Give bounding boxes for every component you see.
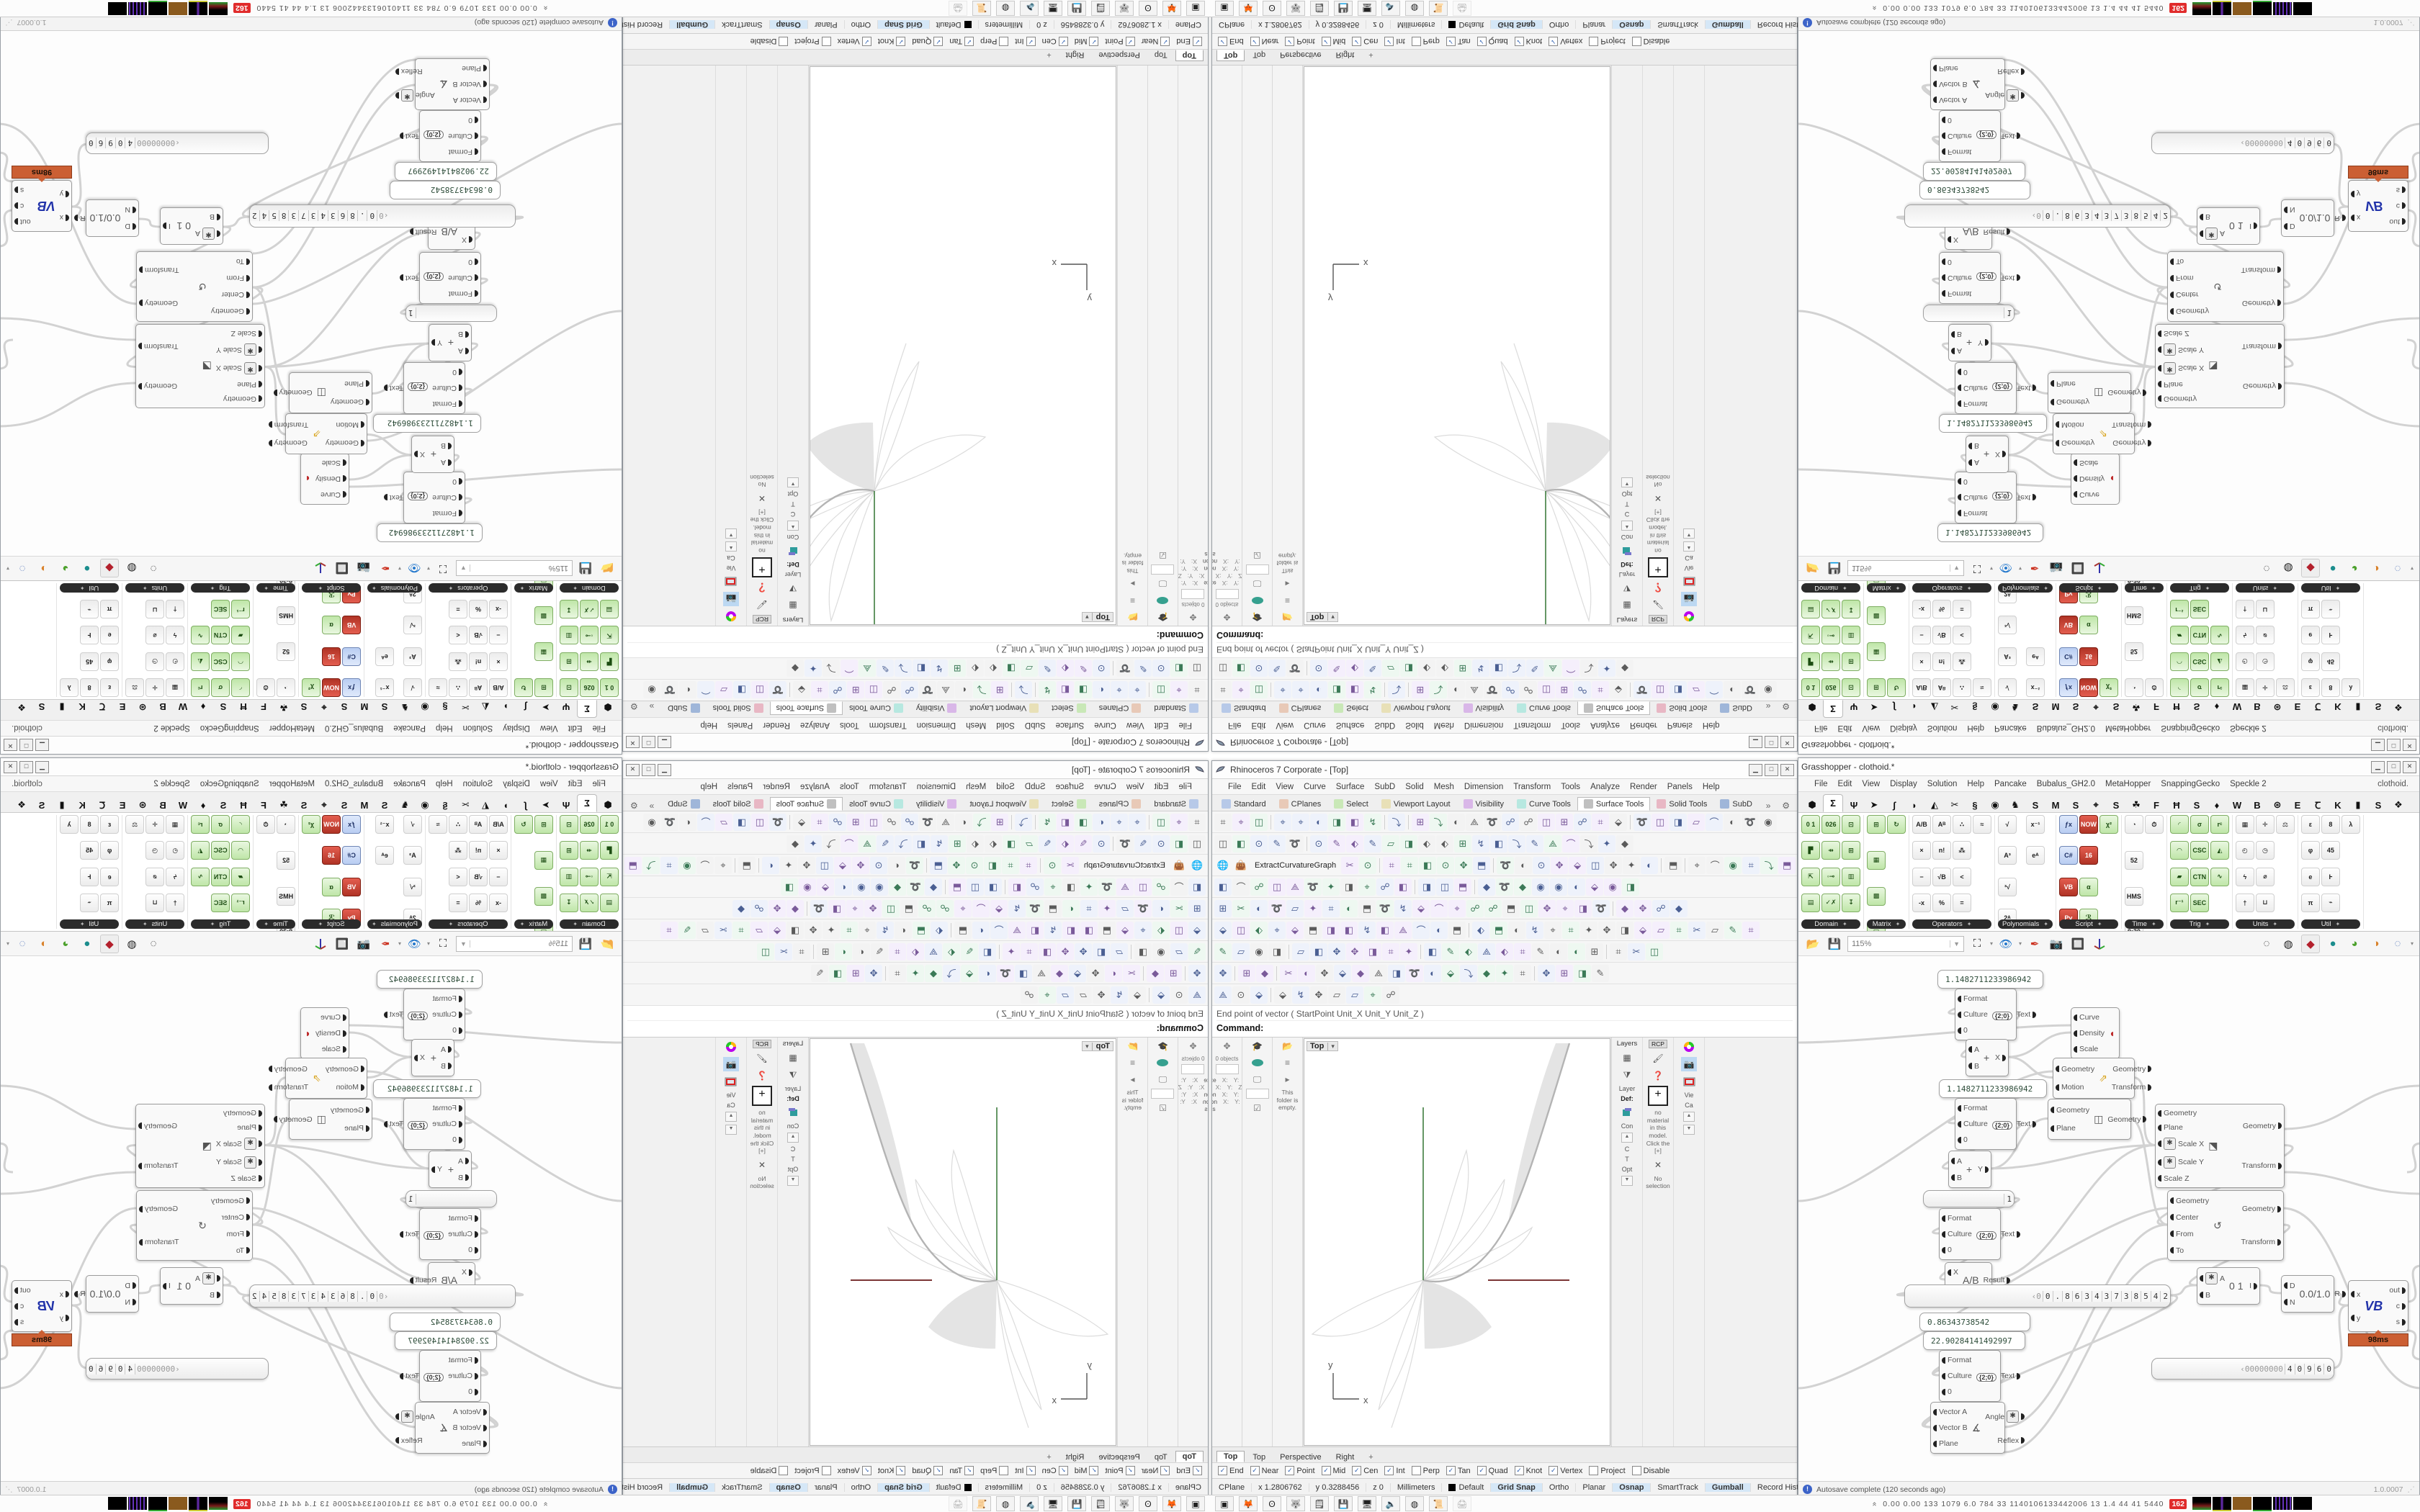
toolbar-button-icon[interactable]: ⌖ bbox=[1274, 814, 1291, 831]
gh-tab-3[interactable]: ➤ bbox=[1865, 798, 1883, 812]
gh-titlebar[interactable]: Grasshopper - clothoid.* ▁□✕ bbox=[1, 758, 622, 776]
component-icon-util-3[interactable]: π bbox=[100, 600, 119, 618]
toolbar-button-icon[interactable]: ◐ bbox=[888, 857, 905, 874]
toolbar-button-icon[interactable]: ▱ bbox=[696, 922, 714, 939]
menu-item-metahopper[interactable]: MetaHopper bbox=[2100, 723, 2156, 734]
terminal-icon[interactable]: ▣ bbox=[1186, 1496, 1205, 1511]
toolbar-button-icon[interactable]: ◉ bbox=[643, 682, 660, 699]
component-icon-util-5[interactable]: 45 bbox=[80, 652, 99, 671]
boxedit-field-rotation-y[interactable]: Y: bbox=[1229, 558, 1240, 565]
close-button[interactable]: ✕ bbox=[4, 761, 17, 773]
maximize-button[interactable]: □ bbox=[2387, 739, 2401, 752]
menu-item-help[interactable]: Help bbox=[695, 720, 722, 732]
toolbar-button-icon[interactable]: ⌗ bbox=[811, 682, 828, 699]
component-icon-units-6[interactable]: ⌀ bbox=[2256, 868, 2275, 886]
gh-component-angle[interactable]: Vector AVector BPlane∡Angle ✱Reflex bbox=[415, 58, 490, 110]
toolbar-button-icon[interactable]: ⌒ bbox=[696, 857, 714, 874]
component-icon-util-4[interactable]: 8 bbox=[80, 678, 99, 697]
toolbar-button-icon[interactable]: ◆ bbox=[732, 900, 750, 917]
component-icon-polynomials-0[interactable]: √ bbox=[403, 678, 422, 697]
gh-component-vb[interactable]: xyVBoutcs bbox=[2348, 1280, 2408, 1332]
boxedit-field-size-z[interactable]: Z: bbox=[1178, 1076, 1181, 1084]
toolbar-button-icon[interactable]: ➰ bbox=[1134, 900, 1152, 917]
gh-tab-7[interactable]: ✂ bbox=[1945, 700, 1964, 714]
toolbar-button-icon[interactable]: ⊞ bbox=[991, 682, 1008, 699]
toolbar-button-icon[interactable]: ⌖ bbox=[1232, 814, 1250, 831]
toolbar-button-icon[interactable]: ◫ bbox=[1214, 660, 1232, 678]
toolbar-tab-subd[interactable]: SubD bbox=[1713, 701, 1759, 715]
toolbar-button-icon[interactable]: ⟁ bbox=[1188, 986, 1206, 1004]
gh-tab-4[interactable]: ʃ bbox=[1885, 798, 1904, 812]
status-toggle-gumball[interactable]: Gumball bbox=[1706, 1483, 1751, 1492]
gh-component-addx[interactable]: AB+X bbox=[1966, 1039, 2009, 1076]
toolbar-button-icon[interactable]: ☍ bbox=[750, 900, 768, 917]
component-icon-units-7[interactable]: ⊔ bbox=[2256, 894, 2275, 912]
toolbar-button-icon[interactable]: ✥ bbox=[1598, 922, 1615, 939]
toolbar-button-icon[interactable]: ◧ bbox=[913, 660, 930, 678]
gh-tab-11[interactable]: S bbox=[2026, 798, 2045, 812]
toolbar-button-icon[interactable]: ◧ bbox=[1424, 943, 1441, 960]
toolbar-button-icon[interactable]: ▱ bbox=[1170, 943, 1188, 960]
gh-tab-9[interactable]: ◉ bbox=[416, 700, 434, 714]
toolbar-button-icon[interactable]: ☍ bbox=[883, 814, 900, 831]
component-icon-units-3[interactable]: † bbox=[166, 894, 184, 912]
green-sphere-icon[interactable]: ◕ bbox=[57, 935, 74, 953]
menu-item-bubalus-gh2-0[interactable]: Bubalus_GH2.0 bbox=[2032, 723, 2100, 734]
toolbar-button-icon[interactable]: ↯ bbox=[877, 922, 894, 939]
menu-item-dimension[interactable]: Dimension bbox=[912, 781, 961, 793]
open-folder-icon[interactable]: 📂 bbox=[1804, 560, 1821, 577]
menu-item-analyze[interactable]: Analyze bbox=[1585, 781, 1625, 793]
osnap-checkbox-disable[interactable] bbox=[779, 1466, 788, 1475]
component-icon-trig-0[interactable]: ◜ bbox=[231, 678, 250, 697]
boxedit-field-position-x[interactable]: X: bbox=[1216, 1091, 1228, 1098]
component-icon-domain-8[interactable]: ⊡ bbox=[560, 678, 578, 697]
component-icon-script-0[interactable]: ƒx bbox=[2059, 678, 2078, 697]
menu-item-tools[interactable]: Tools bbox=[1556, 781, 1585, 793]
component-icon-domain-5[interactable]: ⇸ bbox=[580, 652, 599, 671]
osnap-checkbox-mid[interactable]: ✓ bbox=[1322, 1466, 1331, 1475]
boxedit-field-rotation-y[interactable]: Y: bbox=[1180, 1098, 1191, 1105]
menu-item-metahopper[interactable]: MetaHopper bbox=[2100, 778, 2156, 790]
viewport-label-dropdown[interactable]: ▾ bbox=[1327, 1043, 1335, 1050]
toolbar-button-icon[interactable]: ⌖ bbox=[1688, 857, 1706, 874]
gh-tab-3[interactable]: ➤ bbox=[537, 798, 555, 812]
toolbar-button-icon[interactable]: ◫ bbox=[1188, 835, 1206, 852]
toolbar-button-icon[interactable]: ☍ bbox=[1026, 878, 1044, 896]
ribbon-pill-polynomials[interactable]: Polynomials✦ bbox=[1998, 583, 2053, 593]
component-icon-operators-12[interactable]: ≈ bbox=[429, 678, 447, 697]
ribbon-pill-domain[interactable]: Domain✦ bbox=[1801, 919, 1860, 929]
toolbar-button-icon[interactable]: ◧ bbox=[1310, 943, 1327, 960]
gh-tab-19[interactable]: S bbox=[2187, 700, 2206, 714]
component-icon-operators-9[interactable]: ⁂ bbox=[1953, 652, 1971, 671]
status-units[interactable]: Millimeters bbox=[978, 1483, 1030, 1492]
gh-tab-20[interactable]: ♦ bbox=[2208, 700, 2226, 714]
component-icon-units-0[interactable]: ▦ bbox=[2236, 815, 2254, 834]
save-icon[interactable]: 💾 bbox=[577, 935, 594, 953]
toolbar-button-icon[interactable]: ✥ bbox=[852, 857, 869, 874]
filter-funnel-icon[interactable]: ⧩ bbox=[785, 1068, 801, 1082]
menu-item-bubalus-gh2-0[interactable]: Bubalus_GH2.0 bbox=[320, 778, 388, 790]
osnap-checkbox-knot[interactable]: ✓ bbox=[896, 37, 905, 46]
component-icon-util-1[interactable]: φ bbox=[100, 841, 119, 860]
boxedit-panel[interactable]: ✥ 0 objects ▲ SizeX:Y:Z:▲ ScaleX:Y:Z:▲ P… bbox=[1178, 66, 1208, 626]
gh-tab-27[interactable]: ▮ bbox=[2349, 700, 2367, 714]
status-units[interactable]: Millimeters bbox=[1391, 1483, 1443, 1492]
toolbar-button-icon[interactable]: ✎ bbox=[1268, 660, 1286, 678]
toolbar-button-icon[interactable]: ➰ bbox=[919, 682, 936, 699]
toolbar-button-icon[interactable]: ⬒ bbox=[949, 878, 966, 896]
gh-component-fmt2[interactable]: FormatCulture0{2;0}Text bbox=[1955, 362, 2017, 414]
component-icon-matrix-0[interactable]: ⊞ bbox=[534, 678, 553, 697]
boxedit-field-position-y[interactable]: Y: bbox=[1181, 1091, 1193, 1098]
toolbar-button-icon[interactable]: ⌗ bbox=[889, 943, 906, 960]
component-icon-units-7[interactable]: ⊔ bbox=[145, 600, 164, 618]
boxedit-field-rotation-x[interactable]: X: bbox=[1191, 1098, 1203, 1105]
viewport-tab-top-2[interactable]: Top bbox=[1246, 1452, 1272, 1462]
toolbar-button-icon[interactable]: ➰ bbox=[1286, 835, 1304, 852]
component-icon-operators-1[interactable]: × bbox=[489, 652, 508, 671]
close-x-icon[interactable]: ✕ bbox=[1650, 491, 1666, 505]
boxedit-field-size-y[interactable]: Y: bbox=[1181, 580, 1193, 587]
menu-item-display[interactable]: Display bbox=[1885, 723, 1922, 734]
red-frame-icon[interactable] bbox=[1681, 575, 1697, 589]
toolbar-button-icon[interactable]: ⟁ bbox=[1544, 835, 1561, 852]
toolbar-button-icon[interactable]: ✥ bbox=[1538, 900, 1556, 917]
gh-tab-2[interactable]: Ψ bbox=[1845, 700, 1863, 714]
gh-tab-5[interactable]: ◗ bbox=[496, 798, 515, 812]
boxedit-field-scale-x[interactable]: X: bbox=[1212, 572, 1222, 580]
component-icon-operators-6[interactable]: √B bbox=[1932, 868, 1951, 886]
toolbar-button-icon[interactable]: ⌖ bbox=[1448, 900, 1466, 917]
toolbar-button-icon[interactable]: ◉ bbox=[1724, 857, 1742, 874]
component-icon-util-8[interactable]: λ bbox=[60, 678, 79, 697]
menu-item-view[interactable]: View bbox=[1121, 720, 1149, 732]
component-icon-domain-3[interactable]: ▤ bbox=[600, 894, 619, 912]
toolbar-button-icon[interactable]: ◧ bbox=[1093, 943, 1110, 960]
toolbar-button-icon[interactable]: ◧ bbox=[1170, 660, 1188, 678]
speaker-box-icon[interactable]: 🔲 bbox=[2069, 935, 2087, 953]
ribbon-pill-polynomials[interactable]: Polynomials✦ bbox=[367, 583, 422, 593]
toolbar-button-icon[interactable]: ⬙ bbox=[1250, 986, 1268, 1004]
osnap-checkbox-end[interactable]: ✓ bbox=[1193, 1466, 1202, 1475]
printer-disabled-icon[interactable]: 🖨 bbox=[1453, 1496, 1471, 1511]
toolbar-button-icon[interactable]: ✎ bbox=[1526, 835, 1543, 852]
gh-component-ds1[interactable]: ‹00.86343738542 bbox=[249, 1284, 516, 1308]
gh-component-panel3[interactable]: 0.86343738542 bbox=[1919, 181, 2030, 199]
toolbar-tab-surface-tools[interactable]: Surface Tools bbox=[1577, 797, 1650, 811]
close-button[interactable]: ✕ bbox=[2403, 761, 2416, 773]
menu-item-file[interactable]: File bbox=[1223, 781, 1247, 793]
toolbar-button-icon[interactable]: ◧ bbox=[1394, 878, 1412, 896]
component-icon-domain-7[interactable]: ✓✗ bbox=[580, 894, 599, 912]
boxedit-section-size[interactable]: ▲ Size bbox=[1212, 580, 1216, 587]
toolbar-button-icon[interactable]: ⬙ bbox=[1286, 922, 1304, 939]
toolbar-button-icon[interactable]: ◐ bbox=[679, 814, 696, 831]
menu-item-transform[interactable]: Transform bbox=[1508, 720, 1556, 732]
gh-component-addy[interactable]: AB+Y bbox=[429, 1151, 472, 1188]
toolbar-button-icon[interactable]: ◐ bbox=[1568, 878, 1585, 896]
toolbar-tab-visibility[interactable]: Visibility bbox=[910, 701, 964, 715]
menu-item-mesh[interactable]: Mesh bbox=[961, 781, 991, 793]
ribbon-pill-time[interactable]: Time✦ bbox=[256, 919, 295, 929]
component-icon-operators-2[interactable]: − bbox=[489, 868, 508, 886]
zoom-extents-icon[interactable]: ⛶ bbox=[434, 935, 452, 953]
boxedit-section-size[interactable]: ▲ Size bbox=[1204, 1076, 1208, 1084]
component-icon-units-0[interactable]: ▦ bbox=[166, 678, 184, 697]
toolbar-button-icon[interactable]: ⌖ bbox=[1044, 878, 1062, 896]
menu-item-pancake[interactable]: Pancake bbox=[1989, 723, 2032, 734]
menu-item-speckle-2[interactable]: Speckle 2 bbox=[148, 778, 195, 790]
gh-canvas[interactable]: 1.1482711233986942FormatCulture0{2;0}Tex… bbox=[1798, 956, 2419, 1481]
toolbar-button-icon[interactable]: ⬖ bbox=[1496, 943, 1513, 960]
component-icon-trig-7[interactable]: SEC bbox=[2190, 600, 2209, 618]
menu-item-panels[interactable]: Panels bbox=[722, 720, 758, 732]
scroll-down-icon[interactable]: ▼ bbox=[725, 528, 737, 539]
toolbar-button-icon[interactable]: ✎ bbox=[1075, 835, 1092, 852]
status-toggle-gumball[interactable]: Gumball bbox=[1706, 20, 1751, 29]
gh-component-addx[interactable]: AB+X bbox=[411, 436, 454, 473]
gh-tab-12[interactable]: M bbox=[2046, 700, 2065, 714]
component-icon-matrix-0[interactable]: ⊞ bbox=[1867, 678, 1886, 697]
component-icon-polynomials-0[interactable]: √ bbox=[1998, 815, 2017, 834]
toolbar-button-icon[interactable]: ⌒ bbox=[1562, 660, 1579, 678]
component-icon-operators-9[interactable]: ⁂ bbox=[449, 652, 467, 671]
blender-icon[interactable]: ʘ bbox=[1263, 1496, 1281, 1511]
component-icon-trig-2[interactable]: ▰ bbox=[2170, 868, 2189, 886]
component-icon-domain-11[interactable]: ↧ bbox=[1842, 894, 1860, 912]
component-icon-util-5[interactable]: 45 bbox=[80, 841, 99, 860]
scroll-up-icon[interactable]: ▲ bbox=[1683, 1112, 1695, 1122]
component-icon-polynomials-5[interactable]: eᴬ bbox=[375, 647, 394, 666]
component-icon-domain-2[interactable]: ⇱ bbox=[600, 626, 619, 645]
component-icon-time-4[interactable]: ⏱ bbox=[256, 815, 275, 834]
menu-item-bubalus-gh2-0[interactable]: Bubalus_GH2.0 bbox=[320, 723, 388, 734]
component-icon-util-6[interactable]: Ⱶ bbox=[2321, 868, 2340, 886]
ribbon-pill-util[interactable]: Util✦ bbox=[60, 919, 119, 929]
toolbar-button-icon[interactable]: ▱ bbox=[1652, 922, 1670, 939]
toolbar-button-icon[interactable]: ⬙ bbox=[793, 814, 810, 831]
toolbar-button-icon[interactable]: ⌗ bbox=[660, 922, 678, 939]
toolbar-button-icon[interactable]: ◫ bbox=[1436, 878, 1453, 896]
component-icon-operators-3[interactable]: -x bbox=[1912, 600, 1931, 618]
component-icon-units-8[interactable]: ⚖ bbox=[2276, 678, 2295, 697]
toolbar-button-icon[interactable]: ⤵ bbox=[823, 660, 840, 678]
component-icon-script-5[interactable]: 16 bbox=[2079, 647, 2098, 666]
toolbar-button-icon[interactable]: ⌗ bbox=[793, 943, 810, 960]
toolbar-button-icon[interactable]: ⬖ bbox=[1436, 835, 1453, 852]
extract-curvature-graph-button[interactable]: ExtractCurvatureGraph bbox=[1250, 861, 1340, 870]
toolbar-button-icon[interactable]: ↯ bbox=[1044, 922, 1062, 939]
printer-disabled-icon[interactable]: 🖨 bbox=[949, 1, 967, 16]
toolbar-button-icon[interactable]: ✦ bbox=[1322, 878, 1340, 896]
toolbar-button-icon[interactable]: ↯ bbox=[931, 835, 948, 852]
menu-item-render[interactable]: Render bbox=[758, 781, 795, 793]
menu-item-edit[interactable]: Edit bbox=[563, 778, 588, 790]
ribbon-pill-time[interactable]: Time✦ bbox=[256, 583, 295, 593]
menu-item-view[interactable]: View bbox=[535, 723, 563, 734]
component-icon-time-1[interactable]: 52 bbox=[277, 642, 295, 661]
menu-item-edit[interactable]: Edit bbox=[1149, 720, 1174, 732]
status-toggle-osnap[interactable]: Osnap bbox=[1613, 1483, 1651, 1492]
component-icon-units-6[interactable]: ⌀ bbox=[2256, 626, 2275, 645]
toolbar-button-icon[interactable]: ☍ bbox=[829, 682, 846, 699]
menu-item-display[interactable]: Display bbox=[498, 778, 535, 790]
toolbar-button-icon[interactable]: ◧ bbox=[984, 857, 1001, 874]
gh-tab-16[interactable]: ☘ bbox=[2127, 798, 2146, 812]
toolbar-overflow-chevron[interactable]: » bbox=[1762, 801, 1775, 811]
gh-component-ds2[interactable]: ‹0000000040960 bbox=[86, 132, 269, 154]
toolbar-button-icon[interactable]: ⬒ bbox=[1778, 857, 1796, 874]
component-icon-script-6[interactable]: α bbox=[322, 878, 341, 896]
toolbar-button-icon[interactable]: ⤵ bbox=[895, 835, 912, 852]
toolbar-button-icon[interactable]: ◆ bbox=[786, 900, 804, 917]
component-icon-operators-4[interactable]: Aᴮ bbox=[1932, 815, 1951, 834]
help-icon[interactable]: ❓ bbox=[1650, 1068, 1666, 1083]
component-icon-util-6[interactable]: Ⱶ bbox=[80, 626, 99, 645]
speaker-icon[interactable]: 🔈 bbox=[1381, 1496, 1400, 1511]
osnap-checkbox-int[interactable]: ✓ bbox=[1384, 1466, 1394, 1475]
floppy64-icon[interactable]: 💾 bbox=[1334, 1, 1353, 16]
component-icon-script-0[interactable]: ƒx bbox=[342, 678, 361, 697]
hamburger-icon[interactable]: ≡ bbox=[1125, 593, 1141, 608]
component-icon-domain-5[interactable]: ⇸ bbox=[1821, 652, 1840, 671]
status-toggle-ortho[interactable]: Ortho bbox=[844, 20, 878, 29]
component-icon-script-1[interactable]: C# bbox=[2059, 846, 2078, 865]
component-icon-trig-4[interactable]: σ bbox=[2190, 815, 2209, 834]
ribbon-pill-script[interactable]: Script✦ bbox=[2059, 583, 2118, 593]
expand-icon[interactable]: ▸ bbox=[1125, 1072, 1141, 1086]
gh-tab-28[interactable]: S bbox=[32, 798, 51, 812]
toolbar-button-icon[interactable]: ◆ bbox=[1256, 965, 1273, 982]
component-icon-operators-2[interactable]: − bbox=[1912, 626, 1931, 645]
toolbar-button-icon[interactable]: ✎ bbox=[811, 965, 828, 982]
toolbar-button-icon[interactable]: ☍ bbox=[1021, 986, 1038, 1004]
gh-tab-26[interactable]: K bbox=[2329, 798, 2347, 812]
gh-component-panel1[interactable]: 1.1482711233986942 bbox=[1937, 970, 2043, 989]
component-icon-operators-8[interactable]: ∴ bbox=[449, 678, 467, 697]
toolbar-button-icon[interactable]: ⊙ bbox=[1250, 835, 1268, 852]
toolbar-button-icon[interactable]: ✥ bbox=[948, 857, 965, 874]
status-toggle-grid-snap[interactable]: Grid Snap bbox=[877, 20, 929, 29]
maximize-button[interactable]: □ bbox=[2387, 761, 2401, 773]
red-gem-icon[interactable]: ◆ bbox=[2301, 559, 2320, 578]
gh-tab-5[interactable]: ◗ bbox=[1905, 700, 1924, 714]
gh-tab-28[interactable]: S bbox=[2369, 798, 2388, 812]
toolbar-button-icon[interactable]: ⌒ bbox=[1430, 900, 1448, 917]
viewport-tab-perspective[interactable]: Perspective bbox=[1273, 50, 1327, 60]
gh-tab-0[interactable]: ⬢ bbox=[599, 798, 617, 812]
menu-item-help[interactable]: Help bbox=[1962, 723, 1989, 734]
toolbar-tab-subd[interactable]: SubD bbox=[1713, 797, 1759, 811]
gh-component-vb[interactable]: xyVBoutcs bbox=[2348, 180, 2408, 232]
menu-item-display[interactable]: Display bbox=[498, 723, 535, 734]
toolbar-button-icon[interactable]: ◫ bbox=[757, 943, 774, 960]
component-icon-trig-7[interactable]: SEC bbox=[211, 600, 230, 618]
dashed-circle-icon[interactable]: ◌ bbox=[2389, 935, 2406, 953]
status-layer[interactable]: Default bbox=[1442, 1483, 1491, 1492]
gh-component-panel4[interactable]: 22.90284141492997 bbox=[1923, 1331, 2025, 1350]
firefox-icon[interactable]: 🦊 bbox=[1162, 1496, 1181, 1511]
toolbar-button-icon[interactable]: ◧ bbox=[1232, 835, 1250, 852]
gh-tab-19[interactable]: S bbox=[214, 700, 233, 714]
add-material-button[interactable]: + bbox=[752, 557, 772, 577]
component-icon-polynomials-2[interactable]: ³√ bbox=[1998, 616, 2017, 635]
toolbar-button-icon[interactable]: ✎ bbox=[678, 922, 696, 939]
toolbar-button-icon[interactable]: ◆ bbox=[786, 835, 804, 852]
gh-tab-10[interactable]: ♞ bbox=[395, 700, 414, 714]
osnap-checkbox-perp[interactable] bbox=[999, 37, 1008, 46]
toolbar-button-icon[interactable]: ⬒ bbox=[930, 857, 947, 874]
component-icon-trig-3[interactable]: r⁻¹ bbox=[231, 600, 250, 618]
gh-tab-19[interactable]: S bbox=[214, 798, 233, 812]
gh-component-fmt2[interactable]: FormatCulture0{2;0}Text bbox=[403, 1098, 465, 1150]
ribbon-pill-polynomials[interactable]: Polynomials✦ bbox=[367, 919, 422, 929]
gh-component-ds2[interactable]: ‹0000000040960 bbox=[2151, 1358, 2334, 1380]
component-icon-units-4[interactable]: ✛ bbox=[145, 815, 164, 834]
component-icon-time-2[interactable]: HMS bbox=[277, 607, 295, 626]
component-icon-operators-11[interactable]: = bbox=[449, 600, 467, 618]
menu-item-subd[interactable]: SubD bbox=[1369, 781, 1400, 793]
gh-tab-4[interactable]: ʃ bbox=[516, 700, 535, 714]
toolbar-button-icon[interactable]: ✦ bbox=[1623, 857, 1640, 874]
toolbar-button-icon[interactable]: ⌗ bbox=[1080, 900, 1098, 917]
component-icon-trig-2[interactable]: ▰ bbox=[231, 626, 250, 645]
viewport-tab-perspective[interactable]: Perspective bbox=[1092, 50, 1146, 60]
toolbar-button-icon[interactable]: ◫ bbox=[865, 682, 882, 699]
toolbar-button-icon[interactable]: ⟁ bbox=[1033, 965, 1050, 982]
toolbar-button-icon[interactable]: ⊞ bbox=[1412, 682, 1429, 699]
component-icon-operators-11[interactable]: = bbox=[1953, 600, 1971, 618]
component-icon-trig-10[interactable]: ∿ bbox=[2210, 626, 2229, 645]
gh-tab-20[interactable]: ♦ bbox=[194, 700, 212, 714]
toolbar-button-icon[interactable]: ◆ bbox=[1147, 965, 1164, 982]
toolbar-button-icon[interactable]: ⊞ bbox=[1586, 943, 1603, 960]
camera-icon[interactable]: 📷 bbox=[1681, 1057, 1697, 1071]
toolbar-button-icon[interactable]: ◫ bbox=[1152, 682, 1170, 699]
toolbar-button-icon[interactable]: ✦ bbox=[1080, 878, 1098, 896]
toolbar-button-icon[interactable]: ⤵ bbox=[943, 965, 960, 982]
viewport-tab-right[interactable]: Right bbox=[1059, 50, 1091, 60]
component-icon-util-3[interactable]: π bbox=[100, 894, 119, 912]
gh-tab-18[interactable]: Ħ bbox=[2167, 700, 2186, 714]
viewport-top[interactable]: Top▾ bbox=[1304, 66, 1610, 625]
gh-tab-25[interactable]: Ꞇ bbox=[2308, 700, 2327, 714]
component-icon-trig-5[interactable]: CSC bbox=[211, 841, 230, 860]
gh-tab-17[interactable]: F bbox=[254, 700, 273, 714]
toolbar-button-icon[interactable]: ⟁ bbox=[937, 682, 954, 699]
component-icon-operators-1[interactable]: × bbox=[1912, 652, 1931, 671]
component-icon-units-1[interactable]: ◴ bbox=[2236, 652, 2254, 671]
toolbar-button-icon[interactable]: ◫ bbox=[1587, 857, 1604, 874]
component-icon-domain-0[interactable]: 0 1 bbox=[600, 678, 619, 697]
ribbon-pill-util[interactable]: Util✦ bbox=[2301, 919, 2360, 929]
component-icon-domain-4[interactable]: 026 bbox=[580, 815, 599, 834]
component-icon-trig-7[interactable]: SEC bbox=[2190, 894, 2209, 912]
component-icon-trig-4[interactable]: σ bbox=[211, 678, 230, 697]
menu-item-subd[interactable]: SubD bbox=[1020, 720, 1051, 732]
component-icon-time-4[interactable]: ⏱ bbox=[2145, 678, 2164, 697]
component-icon-time-0[interactable]: ◔ bbox=[277, 815, 295, 834]
menu-item-edit[interactable]: Edit bbox=[1247, 781, 1271, 793]
toolbar-button-icon[interactable]: ☍ bbox=[1152, 878, 1170, 896]
osnap-checkbox-cen[interactable]: ✓ bbox=[1352, 1466, 1361, 1475]
toolbar-button-icon[interactable]: ◨ bbox=[1574, 965, 1591, 982]
osnap-checkbox-cen[interactable]: ✓ bbox=[1059, 37, 1068, 46]
component-icon-util-6[interactable]: Ⱶ bbox=[2321, 626, 2340, 645]
gh-tab-27[interactable]: ▮ bbox=[53, 798, 71, 812]
